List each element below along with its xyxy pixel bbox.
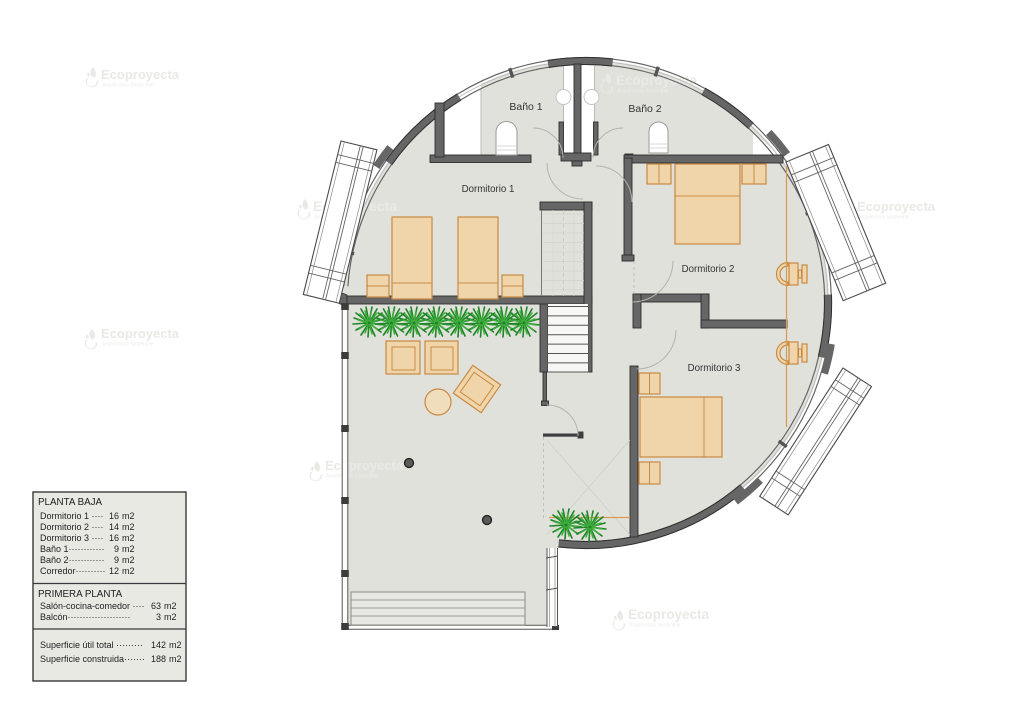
svg-text:Dormitorio 3: Dormitorio 3 [688, 363, 741, 374]
svg-text:m2: m2 [122, 544, 135, 554]
svg-text:Baño 2: Baño 2 [628, 103, 661, 115]
svg-text:Ecoproyecta: Ecoproyecta [857, 199, 936, 214]
svg-text:Dormitorio 2 ····: Dormitorio 2 ···· [40, 522, 104, 532]
svg-text:Dormitorio 1: Dormitorio 1 [462, 184, 515, 195]
svg-text:14: 14 [109, 522, 119, 532]
svg-text:Arquitectura Sostenible: Arquitectura Sostenible [858, 215, 910, 221]
svg-text:Arquitectura Sostenible: Arquitectura Sostenible [617, 89, 669, 95]
svg-text:16: 16 [109, 533, 119, 543]
svg-text:Balcón·····················: Balcón····················· [40, 612, 130, 622]
svg-text:Arquitectura Sostenible: Arquitectura Sostenible [102, 342, 154, 348]
svg-text:PLANTA BAJA: PLANTA BAJA [38, 497, 103, 508]
svg-text:188: 188 [151, 654, 166, 664]
svg-text:63: 63 [151, 601, 161, 611]
svg-text:m2: m2 [122, 533, 135, 543]
svg-text:Ecoproyecta: Ecoproyecta [101, 67, 180, 82]
svg-text:3: 3 [156, 612, 161, 622]
svg-text:Superficie útil total ········: Superficie útil total ········· [40, 640, 143, 650]
svg-text:m2: m2 [169, 654, 182, 664]
svg-text:Ecoproyecta: Ecoproyecta [628, 607, 710, 622]
svg-text:m2: m2 [122, 522, 135, 532]
svg-text:m2: m2 [122, 511, 135, 521]
svg-text:Baño 1············: Baño 1············ [40, 544, 105, 554]
svg-text:Ecoproyecta: Ecoproyecta [325, 458, 404, 473]
svg-text:Corredor··········: Corredor·········· [40, 566, 105, 576]
svg-text:Dormitorio 1 ····: Dormitorio 1 ···· [40, 511, 104, 521]
svg-text:PRIMERA PLANTA: PRIMERA PLANTA [38, 589, 123, 600]
svg-text:Salón-cocina-comedor ····: Salón-cocina-comedor ···· [40, 601, 145, 611]
svg-text:Arquitectura Sostenible: Arquitectura Sostenible [629, 623, 681, 629]
svg-text:Arquitectura Sostenible: Arquitectura Sostenible [326, 474, 378, 480]
svg-text:m2: m2 [164, 601, 177, 611]
svg-text:Ecoproyecta: Ecoproyecta [101, 326, 180, 341]
svg-text:9: 9 [114, 544, 119, 554]
svg-text:9: 9 [114, 555, 119, 565]
svg-text:Dormitorio 2: Dormitorio 2 [682, 264, 735, 275]
svg-text:m2: m2 [164, 612, 177, 622]
svg-text:Dormitorio 3 ····: Dormitorio 3 ···· [40, 533, 104, 543]
svg-text:Baño 1: Baño 1 [509, 101, 542, 113]
svg-text:Superficie construida·······: Superficie construida······· [40, 654, 145, 664]
svg-text:16: 16 [109, 511, 119, 521]
svg-text:m2: m2 [169, 640, 182, 650]
svg-text:Arquitectura Sostenible: Arquitectura Sostenible [102, 83, 154, 89]
svg-text:142: 142 [151, 640, 166, 650]
svg-text:Baño 2············: Baño 2············ [40, 555, 105, 565]
svg-text:12: 12 [109, 566, 119, 576]
svg-text:m2: m2 [122, 566, 135, 576]
svg-text:m2: m2 [122, 555, 135, 565]
